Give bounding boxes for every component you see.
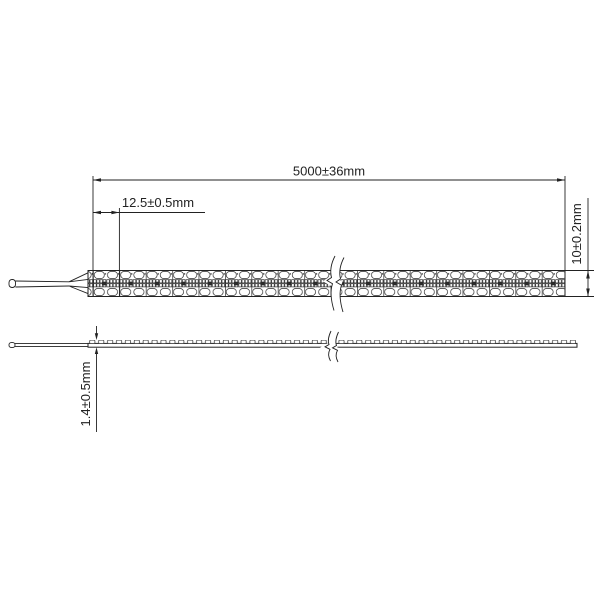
dimension-strip-thickness-label: 1.4±0.5mm [78, 362, 93, 427]
cable-tip [9, 280, 16, 288]
power-cable-side [9, 343, 88, 348]
top-view: 5000±36mm 12.5±0.5mm 10±0.2mm [9, 164, 594, 313]
cable-body [15, 344, 88, 347]
led-strip-technical-drawing: 5000±36mm 12.5±0.5mm 10±0.2mm [0, 0, 600, 600]
dimension-total-length-label: 5000±36mm [293, 164, 365, 179]
arrowhead-left [93, 178, 101, 182]
power-cable-top [9, 273, 88, 294]
drawing-canvas: 5000±36mm 12.5±0.5mm 10±0.2mm [0, 0, 600, 600]
arrowhead-right [111, 211, 119, 215]
cable-body [16, 281, 70, 287]
dimension-strip-width-label: 10±0.2mm [569, 203, 584, 264]
dimension-segment-pitch-label: 12.5±0.5mm [122, 195, 194, 210]
break-mark-side [325, 331, 339, 362]
arrowhead-down [95, 333, 98, 340]
break-mark-top [327, 256, 344, 312]
led-strip-top [88, 271, 565, 297]
arrowhead-up [586, 271, 590, 279]
arrowhead-left [93, 211, 101, 215]
side-view: 1.4±0.5mm [9, 326, 577, 432]
arrowhead-up [95, 347, 98, 354]
cable-fanout-wires [69, 273, 88, 294]
arrowhead-down [586, 289, 590, 297]
dimension-strip-width: 10±0.2mm [565, 198, 594, 297]
arrowhead-right [557, 178, 565, 182]
cable-tip [9, 343, 15, 348]
